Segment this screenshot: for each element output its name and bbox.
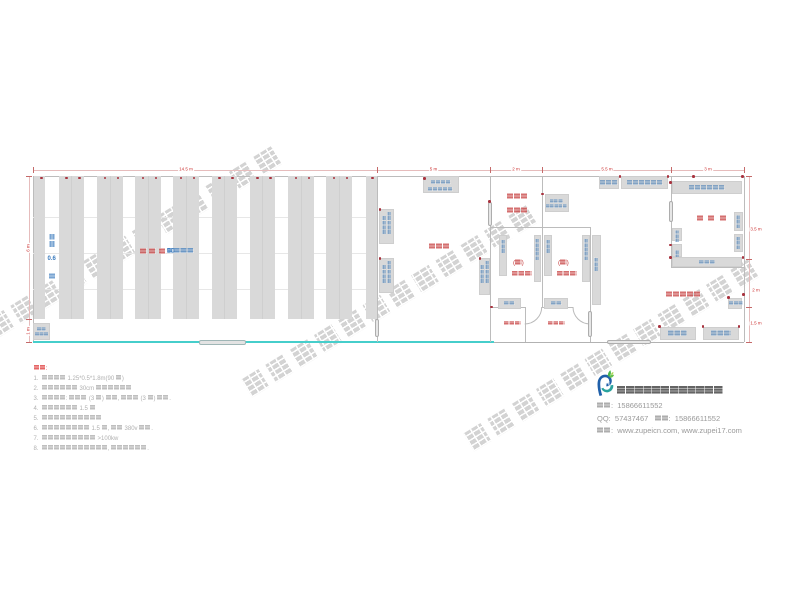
svg-text:TH: TH bbox=[601, 380, 610, 387]
